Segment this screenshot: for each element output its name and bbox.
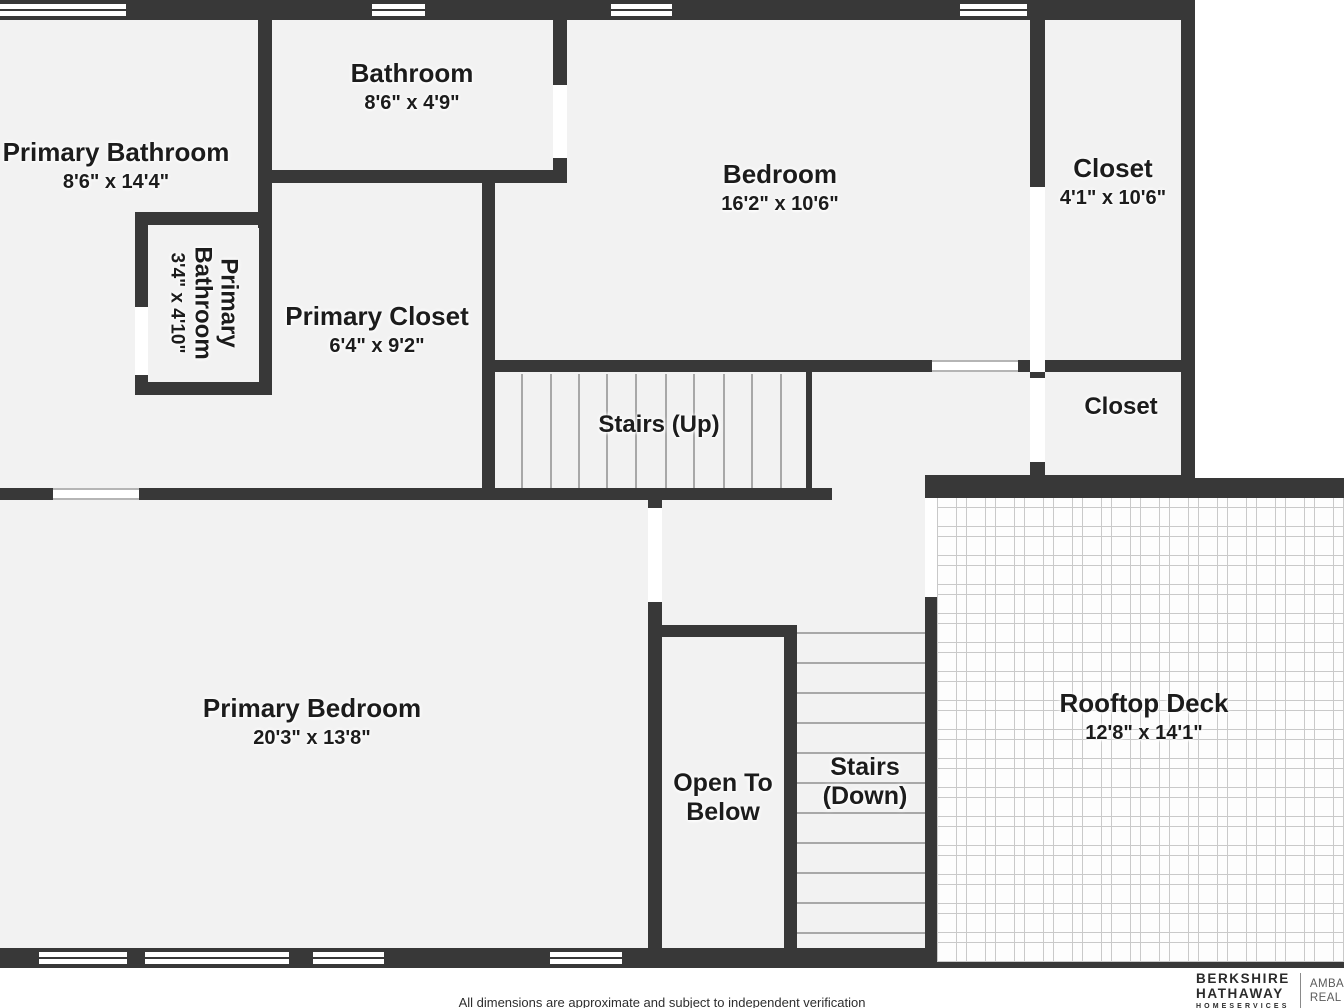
wall-segment bbox=[925, 478, 1344, 498]
stair-tread bbox=[797, 632, 925, 634]
window bbox=[611, 2, 672, 18]
room-dims: 20'3" x 13'8" bbox=[203, 726, 421, 750]
room-name: Bathroom bbox=[351, 59, 474, 89]
wall-segment bbox=[139, 488, 832, 500]
wall-segment bbox=[259, 225, 272, 382]
window bbox=[0, 2, 126, 18]
room-name: Closet bbox=[1084, 393, 1157, 421]
wall-segment bbox=[806, 372, 812, 488]
room-dims: 4'1" x 10'6" bbox=[1060, 186, 1166, 210]
room-label-closet-mid: Closet bbox=[1084, 393, 1157, 421]
brand-line-2: HATHAWAY bbox=[1196, 987, 1290, 1002]
door-opening bbox=[1030, 187, 1045, 372]
wall-segment bbox=[1181, 20, 1195, 488]
stair-tread bbox=[751, 374, 753, 488]
room-dims: 8'6" x 14'4" bbox=[3, 170, 230, 194]
wall-opening bbox=[53, 488, 139, 500]
wall-segment bbox=[258, 170, 567, 183]
room-label-bathroom: Bathroom 8'6" x 4'9" bbox=[351, 59, 474, 115]
room-name: Open To Below bbox=[658, 769, 788, 827]
door-opening bbox=[648, 508, 662, 602]
window bbox=[550, 950, 622, 966]
stair-tread bbox=[797, 842, 925, 844]
door-opening bbox=[925, 498, 937, 597]
stair-tread bbox=[550, 374, 552, 488]
stair-tread bbox=[797, 692, 925, 694]
door-opening bbox=[135, 307, 148, 375]
stair-tread bbox=[797, 902, 925, 904]
door-opening bbox=[1030, 378, 1045, 462]
room-dims: 3'4" x 4'10" bbox=[165, 214, 188, 392]
room-dims: 12'8" x 14'1" bbox=[1060, 721, 1229, 745]
room-name: Primary Bathroom bbox=[3, 138, 230, 168]
room-name: Rooftop Deck bbox=[1060, 689, 1229, 719]
brand-partner-wordmark: AMBASS REAL ES bbox=[1310, 977, 1344, 1006]
stair-tread bbox=[797, 872, 925, 874]
room-label-open-to-below: Open To Below bbox=[658, 769, 788, 827]
wall-segment bbox=[937, 962, 1344, 968]
stair-tread bbox=[521, 374, 523, 488]
wall-segment bbox=[648, 488, 662, 508]
window bbox=[313, 950, 384, 966]
room-name: Stairs (Up) bbox=[598, 411, 719, 439]
brand-partner-line-1: AMBASS bbox=[1310, 977, 1344, 991]
wall-segment bbox=[925, 597, 937, 968]
stair-tread bbox=[797, 662, 925, 664]
stair-tread bbox=[797, 722, 925, 724]
stair-tread bbox=[797, 932, 925, 934]
room-label-closet-top: Closet 4'1" x 10'6" bbox=[1060, 154, 1166, 210]
brand-line-1: BERKSHIRE bbox=[1196, 972, 1290, 987]
wall-segment bbox=[482, 170, 495, 500]
wall-segment bbox=[648, 625, 797, 637]
brand-partner-line-2: REAL ES bbox=[1310, 991, 1344, 1005]
berkshire-hathaway-logo: BERKSHIRE HATHAWAY HOMESERVICES AMBASS R… bbox=[1196, 972, 1344, 1008]
room-name: Stairs (Down) bbox=[807, 753, 923, 811]
room-label-bedroom: Bedroom 16'2" x 10'6" bbox=[721, 160, 838, 216]
stair-tread bbox=[723, 374, 725, 488]
room-label-primary-closet: Primary Closet 6'4" x 9'2" bbox=[285, 302, 469, 358]
room-label-stairs-up: Stairs (Up) bbox=[598, 411, 719, 439]
stair-tread bbox=[578, 374, 580, 488]
room-name: Primary Bedroom bbox=[203, 694, 421, 724]
room-name: Primary Bathroom bbox=[189, 214, 242, 392]
room-label-primary-bathroom: Primary Bathroom 8'6" x 14'4" bbox=[3, 138, 230, 194]
brand-wordmark: BERKSHIRE HATHAWAY HOMESERVICES bbox=[1196, 972, 1290, 1008]
window bbox=[39, 950, 127, 966]
door-opening bbox=[553, 85, 567, 158]
stair-tread bbox=[780, 374, 782, 488]
dimensions-disclaimer: All dimensions are approximate and subje… bbox=[459, 995, 866, 1008]
floor-plan: Primary Bathroom 8'6" x 14'4" Bathroom 8… bbox=[0, 0, 1344, 1008]
wall-segment bbox=[0, 948, 937, 968]
wall-segment bbox=[1030, 20, 1045, 187]
room-label-stairs-down: Stairs (Down) bbox=[807, 753, 923, 811]
wall-segment bbox=[135, 225, 148, 307]
wall-segment bbox=[553, 20, 567, 85]
wall-segment bbox=[0, 488, 53, 500]
wall-opening bbox=[932, 360, 1018, 372]
window bbox=[372, 2, 425, 18]
room-label-primary-bathroom-small: Primary Bathroom 3'4" x 4'10" bbox=[165, 214, 242, 392]
room-dims: 8'6" x 4'9" bbox=[351, 91, 474, 115]
room-dims: 16'2" x 10'6" bbox=[721, 192, 838, 216]
wall-segment bbox=[258, 20, 272, 228]
room-name: Bedroom bbox=[721, 160, 838, 190]
room-label-rooftop-deck: Rooftop Deck 12'8" x 14'1" bbox=[1060, 689, 1229, 745]
window bbox=[960, 2, 1027, 18]
brand-line-3: HOMESERVICES bbox=[1196, 1003, 1290, 1008]
wall-segment bbox=[495, 360, 932, 372]
window bbox=[145, 950, 289, 966]
room-name: Primary Closet bbox=[285, 302, 469, 332]
stair-tread bbox=[797, 812, 925, 814]
room-label-primary-bedroom: Primary Bedroom 20'3" x 13'8" bbox=[203, 694, 421, 750]
brand-divider bbox=[1300, 973, 1301, 1008]
room-dims: 6'4" x 9'2" bbox=[285, 334, 469, 358]
room-name: Closet bbox=[1060, 154, 1166, 184]
